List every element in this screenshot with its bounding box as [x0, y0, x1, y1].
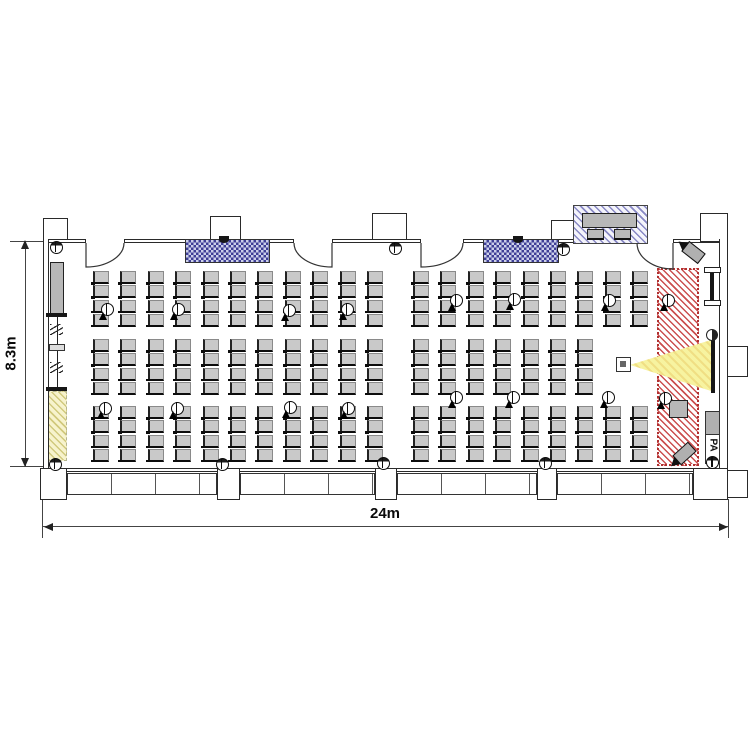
- seat: [468, 420, 484, 433]
- seat: [203, 353, 219, 366]
- seat: [120, 271, 136, 284]
- seat: [257, 382, 273, 395]
- seat: [203, 420, 219, 433]
- seat: [367, 420, 383, 433]
- seat: [203, 382, 219, 395]
- seat: [148, 300, 164, 313]
- floor-mic-icon: [508, 293, 521, 306]
- seat: [230, 435, 246, 448]
- seat: [550, 314, 566, 327]
- seat: [120, 285, 136, 298]
- seat: [468, 353, 484, 366]
- seat: [577, 368, 593, 381]
- seat: [230, 271, 246, 284]
- seat: [367, 382, 383, 395]
- seat: [577, 314, 593, 327]
- seat: [367, 339, 383, 352]
- seat: [495, 353, 511, 366]
- seat: [550, 435, 566, 448]
- seat: [413, 435, 429, 448]
- seat: [312, 271, 328, 284]
- seat: [440, 339, 456, 352]
- seat: [175, 339, 191, 352]
- seat: [340, 271, 356, 284]
- seat: [257, 271, 273, 284]
- seat: [495, 314, 511, 327]
- seat: [632, 449, 648, 462]
- seat: [340, 285, 356, 298]
- floor-mic-icon: [659, 392, 672, 405]
- seat: [367, 368, 383, 381]
- seat: [577, 406, 593, 419]
- seat: [203, 314, 219, 327]
- seat: [523, 382, 539, 395]
- seat: [440, 368, 456, 381]
- seat: [120, 339, 136, 352]
- seat: [148, 353, 164, 366]
- seat: [93, 271, 109, 284]
- seat: [285, 435, 301, 448]
- seat: [257, 449, 273, 462]
- seat: [523, 271, 539, 284]
- seat: [523, 449, 539, 462]
- seat: [577, 420, 593, 433]
- seat: [340, 339, 356, 352]
- seat: [120, 420, 136, 433]
- seat: [413, 314, 429, 327]
- seat: [148, 406, 164, 419]
- seat: [175, 368, 191, 381]
- seat: [148, 382, 164, 395]
- seat: [340, 449, 356, 462]
- seat: [148, 271, 164, 284]
- seating-grid: [0, 0, 750, 750]
- seat: [175, 285, 191, 298]
- seat: [340, 420, 356, 433]
- seat: [367, 314, 383, 327]
- seat: [203, 285, 219, 298]
- seat: [468, 271, 484, 284]
- seat: [230, 339, 246, 352]
- seat: [285, 285, 301, 298]
- seat: [120, 382, 136, 395]
- floor-mic-icon: [284, 401, 297, 414]
- seat: [495, 339, 511, 352]
- seat: [340, 368, 356, 381]
- seat: [120, 406, 136, 419]
- seat: [175, 271, 191, 284]
- seat: [523, 435, 539, 448]
- seat: [605, 449, 621, 462]
- seat: [120, 314, 136, 327]
- seat: [93, 285, 109, 298]
- seat: [440, 449, 456, 462]
- floor-mic-icon: [171, 402, 184, 415]
- seat: [148, 314, 164, 327]
- seat: [550, 285, 566, 298]
- seat: [285, 420, 301, 433]
- floor-mic-icon: [172, 303, 185, 316]
- seat: [468, 314, 484, 327]
- floor-mic-icon: [101, 303, 114, 316]
- seat: [175, 435, 191, 448]
- seat: [413, 271, 429, 284]
- seat: [203, 368, 219, 381]
- seat: [93, 368, 109, 381]
- seat: [312, 382, 328, 395]
- seat: [257, 314, 273, 327]
- meeting-room-floor-plan: 8.3m 24m: [0, 0, 750, 750]
- seat: [367, 285, 383, 298]
- seat: [440, 420, 456, 433]
- seat: [440, 271, 456, 284]
- wall-light-icon: [50, 241, 63, 254]
- seat: [230, 420, 246, 433]
- seat: [203, 300, 219, 313]
- seat: [203, 406, 219, 419]
- seat: [632, 314, 648, 327]
- seat: [413, 353, 429, 366]
- seat: [203, 271, 219, 284]
- seat: [312, 339, 328, 352]
- seat: [148, 435, 164, 448]
- seat: [550, 339, 566, 352]
- seat: [230, 368, 246, 381]
- seat: [523, 285, 539, 298]
- seat: [367, 300, 383, 313]
- seat: [230, 382, 246, 395]
- seat: [148, 285, 164, 298]
- seat: [312, 449, 328, 462]
- seat: [413, 300, 429, 313]
- seat: [577, 435, 593, 448]
- seat: [312, 314, 328, 327]
- floor-mic-icon: [507, 391, 520, 404]
- seat: [550, 300, 566, 313]
- seat: [632, 300, 648, 313]
- seat: [523, 368, 539, 381]
- seat: [605, 435, 621, 448]
- seat: [468, 300, 484, 313]
- seat: [93, 382, 109, 395]
- seat: [550, 449, 566, 462]
- seat: [440, 406, 456, 419]
- seat: [312, 435, 328, 448]
- floor-mic-icon: [99, 402, 112, 415]
- seat: [523, 353, 539, 366]
- seat: [93, 420, 109, 433]
- wall-light-icon: [49, 458, 62, 471]
- seat: [120, 300, 136, 313]
- seat: [468, 382, 484, 395]
- seat: [148, 449, 164, 462]
- seat: [257, 435, 273, 448]
- seat: [257, 339, 273, 352]
- seat: [175, 449, 191, 462]
- seat: [367, 353, 383, 366]
- seat: [605, 406, 621, 419]
- floor-mic-icon: [341, 303, 354, 316]
- seat: [495, 368, 511, 381]
- seat: [550, 406, 566, 419]
- seat: [367, 435, 383, 448]
- wall-light-icon: [389, 242, 402, 255]
- seat: [523, 406, 539, 419]
- seat: [257, 300, 273, 313]
- seat: [230, 353, 246, 366]
- seat: [468, 339, 484, 352]
- seat: [175, 382, 191, 395]
- seat: [577, 382, 593, 395]
- seat: [257, 420, 273, 433]
- floor-mic-icon: [662, 294, 675, 307]
- seat: [468, 368, 484, 381]
- seat: [577, 353, 593, 366]
- seat: [632, 271, 648, 284]
- seat: [413, 285, 429, 298]
- seat: [257, 353, 273, 366]
- seat: [230, 314, 246, 327]
- seat: [93, 435, 109, 448]
- seat: [632, 420, 648, 433]
- seat: [523, 339, 539, 352]
- floor-mic-icon: [450, 391, 463, 404]
- seat: [285, 449, 301, 462]
- seat: [632, 435, 648, 448]
- seat: [312, 285, 328, 298]
- seat: [577, 271, 593, 284]
- seat: [495, 271, 511, 284]
- seat: [440, 435, 456, 448]
- seat: [550, 353, 566, 366]
- seat: [413, 449, 429, 462]
- seat: [148, 420, 164, 433]
- seat: [175, 353, 191, 366]
- seat: [468, 406, 484, 419]
- seat: [605, 420, 621, 433]
- seat: [175, 420, 191, 433]
- floor-mic-icon: [342, 402, 355, 415]
- seat: [203, 339, 219, 352]
- wall-light-icon: [216, 458, 229, 471]
- seat: [312, 300, 328, 313]
- seat: [413, 406, 429, 419]
- seat: [495, 449, 511, 462]
- seat: [203, 435, 219, 448]
- seat: [468, 285, 484, 298]
- seat: [230, 406, 246, 419]
- seat: [340, 435, 356, 448]
- seat: [605, 314, 621, 327]
- seat: [340, 353, 356, 366]
- floor-mic-icon: [602, 391, 615, 404]
- seat: [523, 314, 539, 327]
- seat: [230, 449, 246, 462]
- seat: [93, 353, 109, 366]
- seat: [312, 368, 328, 381]
- seat: [577, 449, 593, 462]
- seat: [120, 353, 136, 366]
- seat: [577, 339, 593, 352]
- seat: [413, 420, 429, 433]
- seat: [413, 339, 429, 352]
- seat: [413, 368, 429, 381]
- wall-light-icon: [377, 457, 390, 470]
- seat: [367, 406, 383, 419]
- seat: [605, 271, 621, 284]
- seat: [632, 285, 648, 298]
- seat: [550, 368, 566, 381]
- seat: [148, 368, 164, 381]
- seat: [120, 449, 136, 462]
- floor-mic-icon: [283, 304, 296, 317]
- seat: [312, 406, 328, 419]
- seat: [257, 368, 273, 381]
- floor-mic-icon: [603, 294, 616, 307]
- seat: [257, 406, 273, 419]
- seat: [495, 435, 511, 448]
- seat: [230, 300, 246, 313]
- seat: [148, 339, 164, 352]
- seat: [495, 420, 511, 433]
- seat: [340, 382, 356, 395]
- seat: [440, 314, 456, 327]
- seat: [285, 339, 301, 352]
- seat: [468, 435, 484, 448]
- seat: [440, 353, 456, 366]
- seat: [550, 420, 566, 433]
- seat: [285, 382, 301, 395]
- seat: [312, 420, 328, 433]
- seat: [120, 435, 136, 448]
- seat: [577, 285, 593, 298]
- seat: [175, 314, 191, 327]
- wall-light-icon: [557, 243, 570, 256]
- seat: [495, 406, 511, 419]
- seat: [285, 353, 301, 366]
- seat: [120, 368, 136, 381]
- seat: [413, 382, 429, 395]
- seat: [93, 449, 109, 462]
- seat: [577, 300, 593, 313]
- seat: [550, 382, 566, 395]
- seat: [523, 300, 539, 313]
- seat: [257, 285, 273, 298]
- seat: [230, 285, 246, 298]
- seat: [468, 449, 484, 462]
- wall-light-icon: [539, 457, 552, 470]
- seat: [367, 271, 383, 284]
- seat: [523, 420, 539, 433]
- seat: [93, 339, 109, 352]
- seat: [632, 406, 648, 419]
- seat: [550, 271, 566, 284]
- seat: [285, 368, 301, 381]
- seat: [285, 271, 301, 284]
- floor-mic-icon: [450, 294, 463, 307]
- seat: [312, 353, 328, 366]
